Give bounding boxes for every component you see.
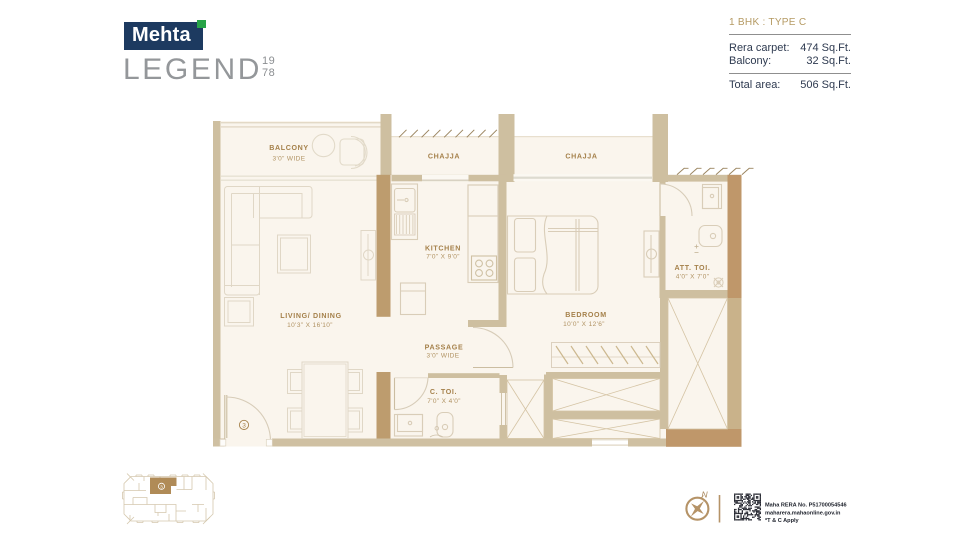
svg-text:N: N xyxy=(702,490,709,500)
svg-text:Maha RERA No. P51700054546: Maha RERA No. P51700054546 xyxy=(765,503,847,509)
svg-text:4'0” X 7'0”: 4'0” X 7'0” xyxy=(676,274,710,281)
svg-text:LIVING/ DINING: LIVING/ DINING xyxy=(280,312,342,320)
svg-text:10'0” X 12'6”: 10'0” X 12'6” xyxy=(563,321,605,328)
svg-text:7'0” X 9'0”: 7'0” X 9'0” xyxy=(426,254,460,261)
svg-text:C. TOI.: C. TOI. xyxy=(430,388,457,396)
svg-text:10'3” X 16'10”: 10'3” X 16'10” xyxy=(287,322,333,329)
svg-text:3'0” WIDE: 3'0” WIDE xyxy=(272,156,305,163)
svg-text:maharera.mahaonline.gov.in: maharera.mahaonline.gov.in xyxy=(765,511,841,517)
svg-text:BEDROOM: BEDROOM xyxy=(565,311,607,319)
svg-text:BALCONY: BALCONY xyxy=(269,144,309,152)
svg-text:KITCHEN: KITCHEN xyxy=(425,244,461,252)
svg-text:*T & C Apply: *T & C Apply xyxy=(765,518,800,524)
svg-text:3: 3 xyxy=(160,484,163,490)
svg-text:CHAJJA: CHAJJA xyxy=(428,153,460,161)
svg-text:PASSAGE: PASSAGE xyxy=(425,344,464,352)
svg-text:3: 3 xyxy=(242,422,246,429)
svg-text:ATT. TOI.: ATT. TOI. xyxy=(675,264,711,272)
svg-text:3'0” WIDE: 3'0” WIDE xyxy=(426,353,459,360)
svg-text:7'0” X 4'0”: 7'0” X 4'0” xyxy=(427,398,461,405)
svg-text:CHAJJA: CHAJJA xyxy=(565,153,597,161)
